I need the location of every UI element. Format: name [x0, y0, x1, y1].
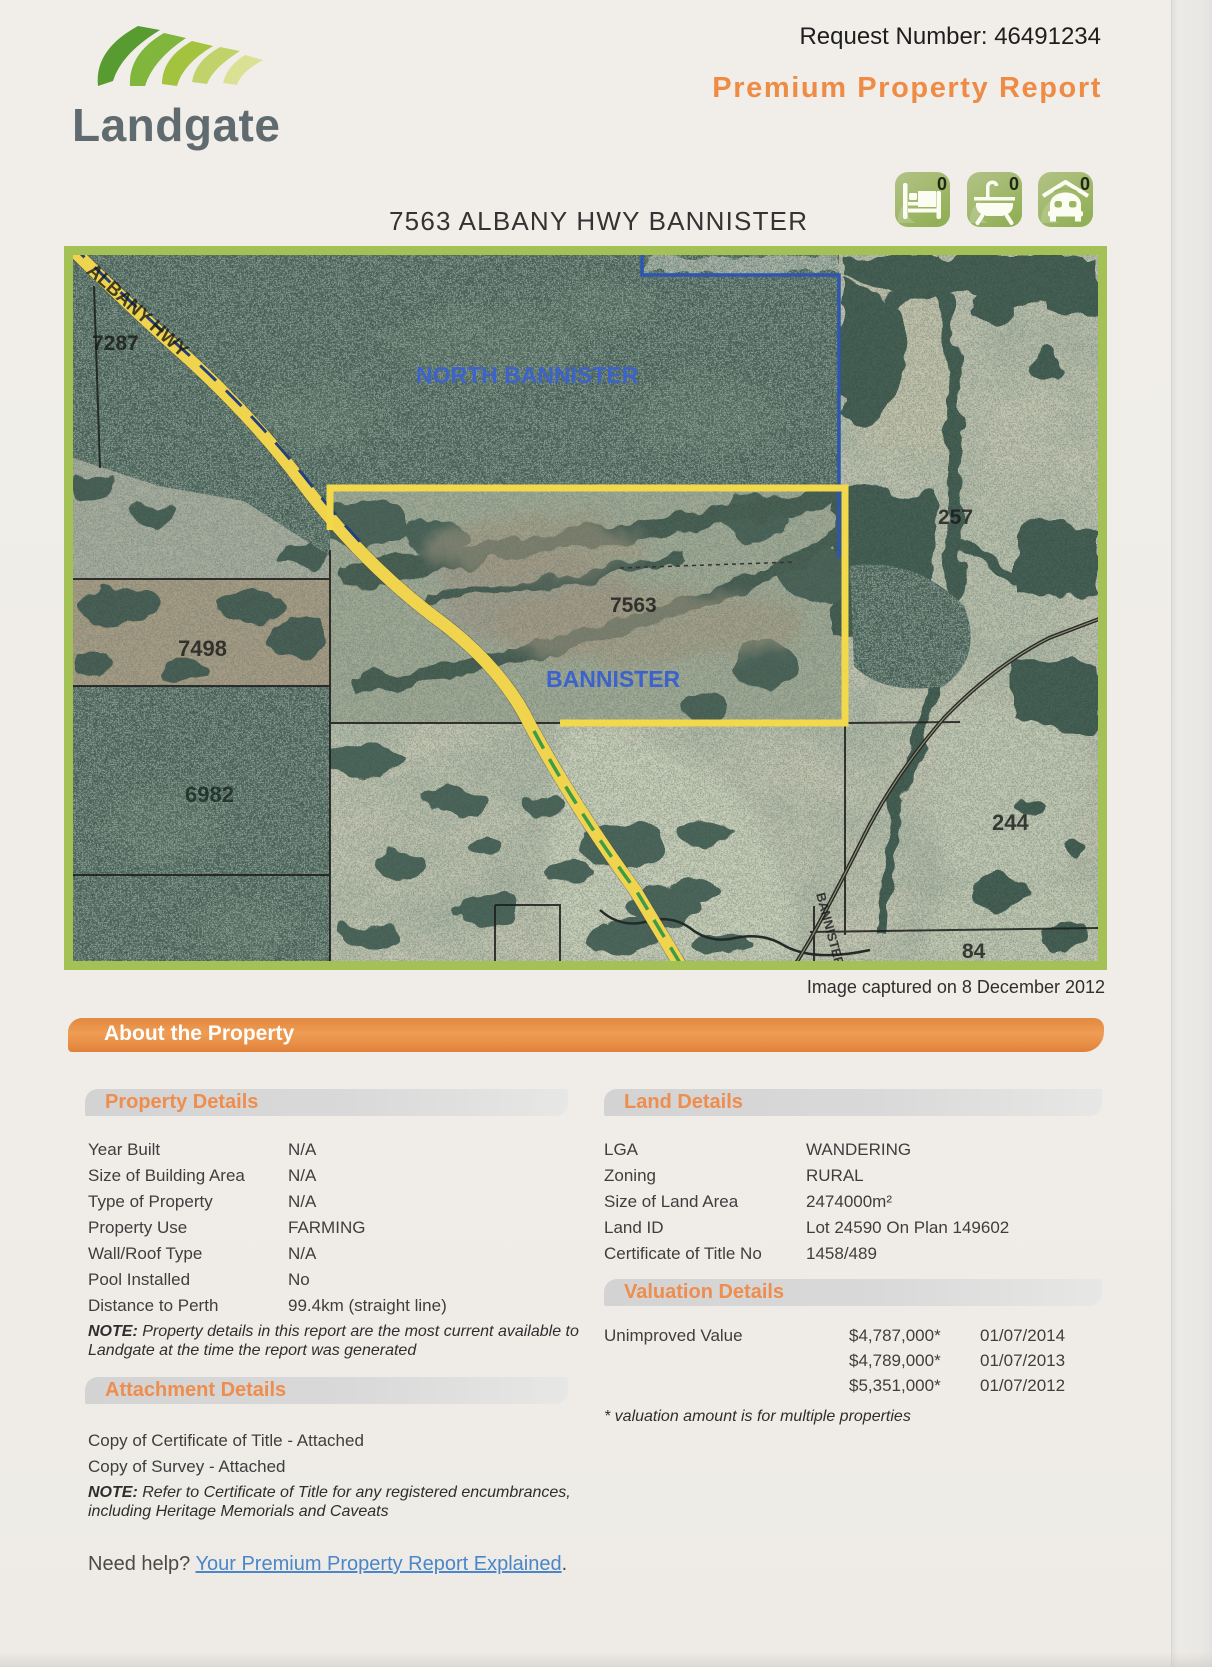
svg-text:BANNISTER: BANNISTER: [546, 666, 681, 692]
svg-text:244: 244: [992, 810, 1029, 835]
svg-text:0: 0: [1080, 174, 1090, 194]
svg-text:7563: 7563: [610, 594, 657, 617]
svg-text:7287: 7287: [92, 332, 139, 355]
svg-text:257: 257: [938, 506, 973, 529]
svg-text:0: 0: [937, 174, 947, 194]
svg-text:NORTH BANNISTER: NORTH BANNISTER: [416, 362, 639, 388]
svg-text:0: 0: [1009, 174, 1019, 194]
svg-text:84: 84: [962, 940, 986, 963]
svg-text:6982: 6982: [185, 782, 234, 807]
svg-text:7498: 7498: [178, 636, 227, 661]
